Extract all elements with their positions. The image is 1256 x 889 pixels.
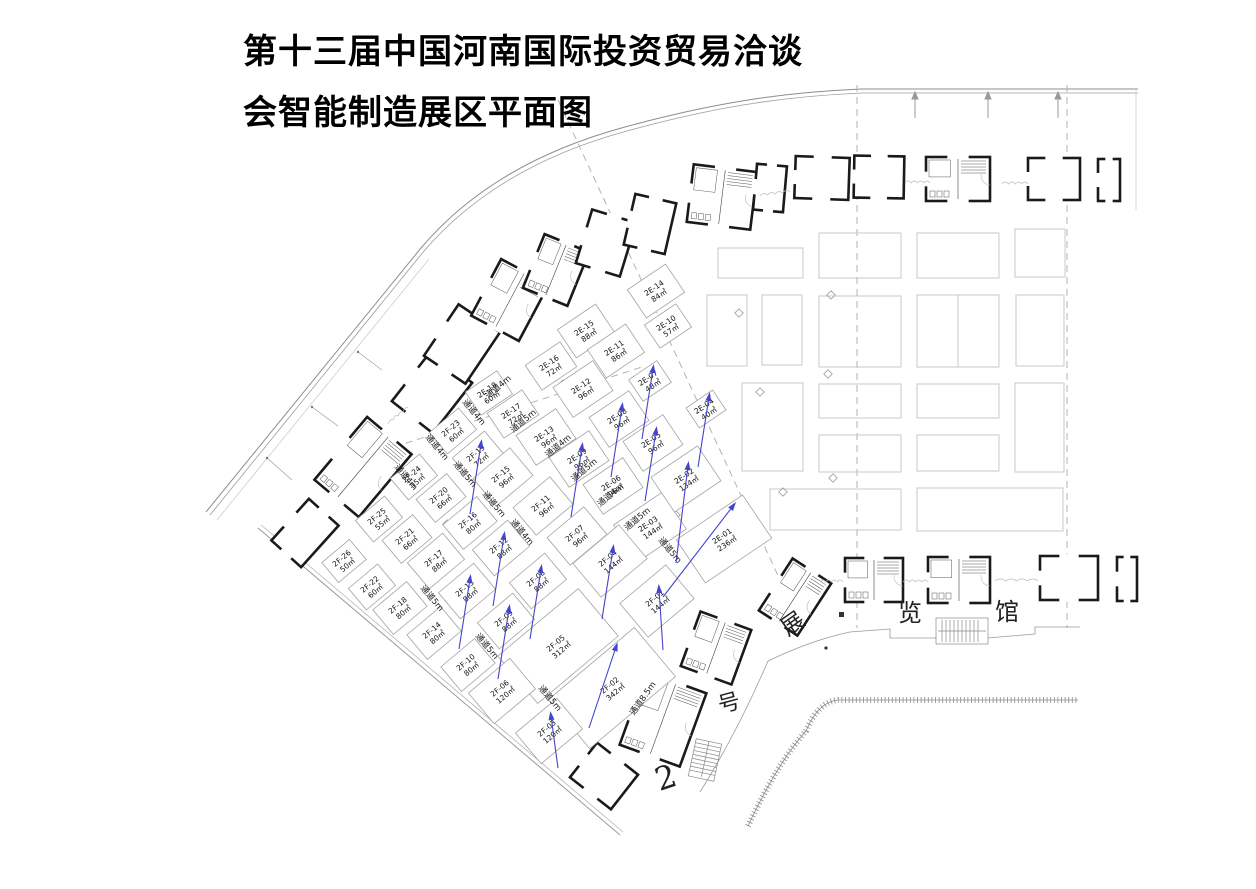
room-block	[1028, 158, 1080, 200]
room-block	[681, 612, 752, 685]
room-block	[1040, 556, 1098, 600]
page-title: 第十三届中国河南国际投资贸易洽谈 会智能制造展区平面图	[243, 22, 803, 144]
reserved-booth-grid	[707, 229, 1065, 531]
room-block	[845, 558, 903, 602]
hatched-boundary	[748, 700, 1078, 826]
facade-lines	[700, 627, 1080, 792]
hatched-boundary-ticks	[748, 700, 1078, 826]
top-entry-arrows	[912, 92, 1061, 118]
room-block	[926, 157, 990, 201]
stairs-east	[936, 618, 988, 644]
booth-2E-01: 2E-01236㎡	[676, 495, 771, 583]
page-title-line1: 第十三届中国河南国际投资贸易洽谈	[243, 22, 803, 83]
floorplan-page: 第十三届中国河南国际投资贸易洽谈 会智能制造展区平面图	[0, 0, 1256, 889]
hall-char-guan: 馆	[995, 598, 1019, 626]
hall-char-lan: 览	[898, 599, 922, 627]
booth-2E-07: 2E-0748㎡	[629, 361, 672, 402]
door-connector	[1002, 182, 1028, 184]
hall-char-hao: 号	[715, 689, 743, 719]
room-block	[794, 156, 849, 200]
room-block	[570, 743, 638, 810]
room-block	[687, 164, 758, 229]
room-block	[1117, 557, 1137, 601]
stairs-south	[688, 739, 721, 782]
booth-2F-26: 2F-2650㎡	[322, 539, 366, 582]
booth-2E-04: 2E-0440㎡	[686, 390, 726, 428]
room-block	[624, 194, 677, 254]
door-connector	[995, 579, 1038, 581]
room-block	[1098, 159, 1120, 201]
room-block	[753, 164, 787, 212]
room-block	[854, 156, 905, 199]
door-connector	[903, 580, 928, 582]
booth-2F-01: 2F-01144㎡	[620, 565, 694, 637]
page-title-line2: 会智能制造展区平面图	[243, 83, 803, 144]
room-block	[928, 557, 990, 603]
